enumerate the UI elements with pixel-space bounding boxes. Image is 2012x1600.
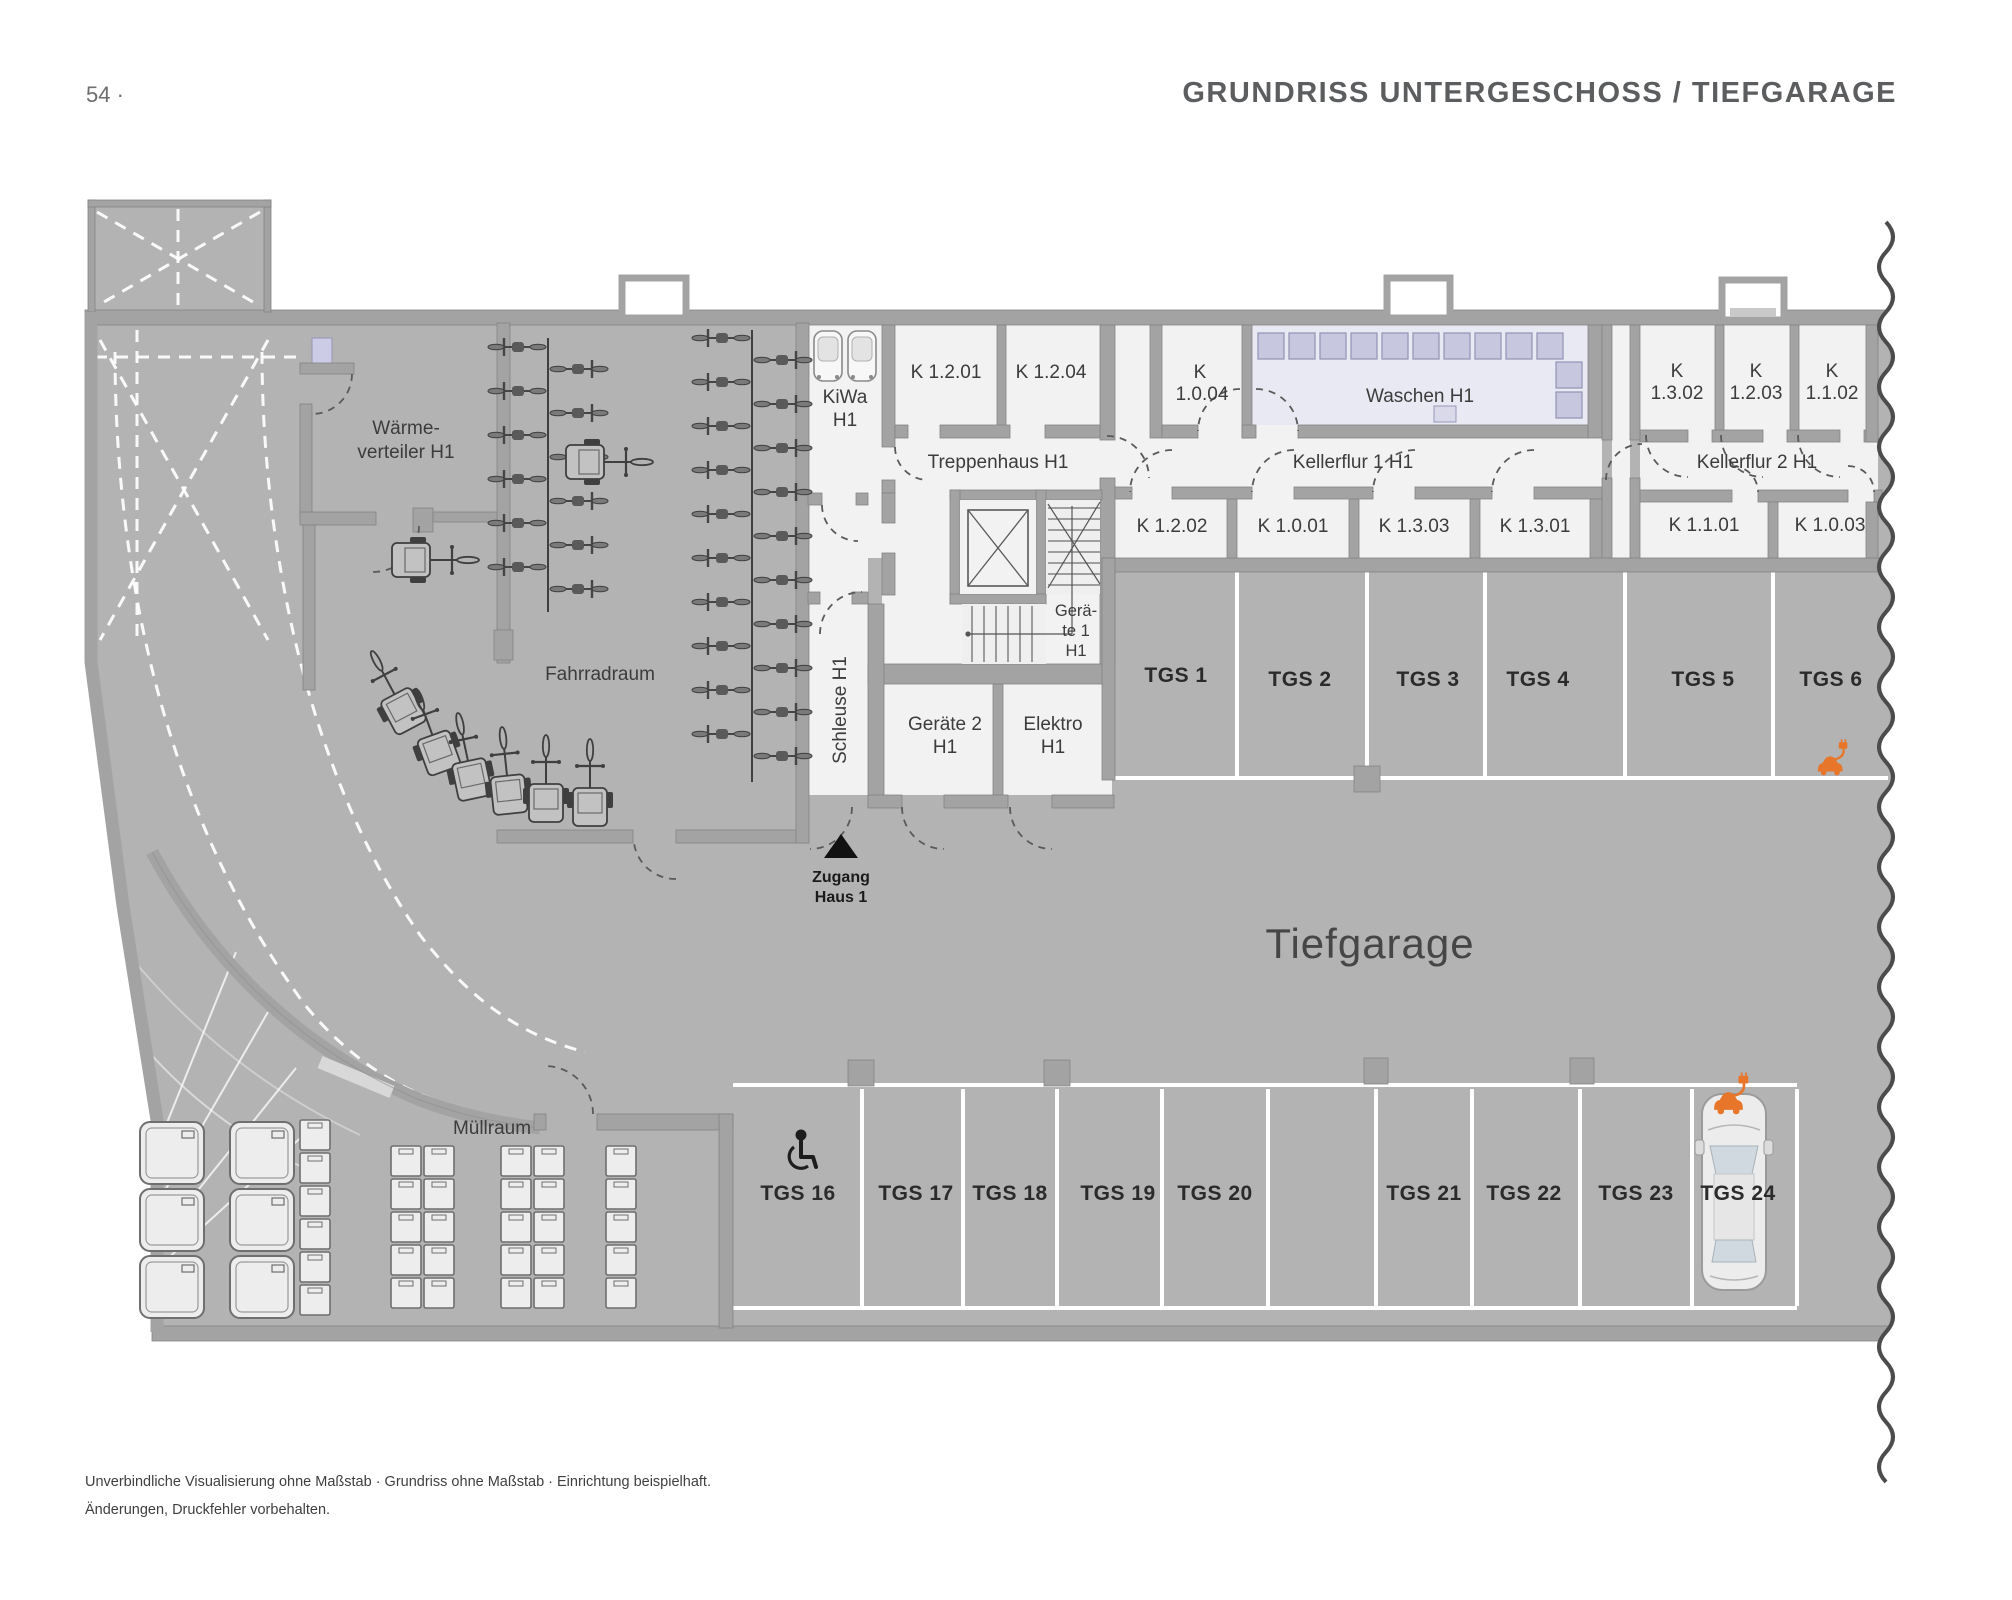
label-kellerflur2: Kellerflur 2 H1 [1697, 452, 1817, 473]
label-tgs-17: TGS 17 [878, 1182, 953, 1205]
label-tgs-5: TGS 5 [1671, 668, 1734, 691]
label-geraete1-1: Gerä- [1055, 602, 1097, 620]
label-tgs-3: TGS 3 [1396, 668, 1459, 691]
elevator-icon [960, 500, 1036, 594]
footnote-line-1: Unverbindliche Visualisierung ohne Maßst… [85, 1474, 711, 1490]
label-tgs-24: TGS 24 [1700, 1182, 1775, 1205]
column [1044, 1060, 1070, 1086]
label-k1102-1: K [1826, 361, 1839, 382]
label-tgs-2: TGS 2 [1268, 668, 1331, 691]
label-tgs-6: TGS 6 [1799, 668, 1862, 691]
label-k1004-2: 1.0.04 [1176, 384, 1229, 405]
label-tgs-23: TGS 23 [1598, 1182, 1673, 1205]
label-kiwa-2: H1 [833, 410, 857, 431]
label-waermeverteiler-1: Wärme- [372, 418, 440, 439]
label-tgs-4: TGS 4 [1506, 668, 1569, 691]
label-zugang-2: Haus 1 [815, 889, 868, 906]
page-title: GRUNDRISS UNTERGESCHOSS / TIEFGARAGE [1182, 77, 1897, 109]
column [1570, 1058, 1594, 1084]
label-tgs-19: TGS 19 [1080, 1182, 1155, 1205]
break-line [1879, 222, 2012, 1482]
label-k1303: K 1.3.03 [1379, 516, 1450, 537]
label-zugang-1: Zugang [812, 869, 870, 886]
label-tgs-16: TGS 16 [760, 1182, 835, 1205]
label-tgs-22: TGS 22 [1486, 1182, 1561, 1205]
page-number: 54 · [86, 82, 124, 107]
label-tgs-1: TGS 1 [1144, 664, 1207, 687]
label-k1203-1: K [1750, 361, 1763, 382]
label-elektro-1: Elektro [1023, 714, 1082, 735]
label-kellerflur1: Kellerflur 1 H1 [1293, 452, 1413, 473]
label-k1302-1: K [1671, 361, 1684, 382]
column [1364, 1058, 1388, 1084]
label-waermeverteiler-2: verteiler H1 [357, 442, 454, 463]
label-k1302-2: 1.3.02 [1651, 383, 1704, 404]
label-tgs-20: TGS 20 [1177, 1182, 1252, 1205]
label-kiwa-1: KiWa [823, 387, 868, 408]
label-fahrradraum: Fahrradraum [545, 664, 655, 685]
document-page: Wärme- verteiler H1 Fahrradraum KiWa H1 … [0, 0, 2012, 1600]
label-waschen: Waschen H1 [1366, 386, 1474, 407]
label-k1203-2: 1.2.03 [1730, 383, 1783, 404]
label-k1102-2: 1.1.02 [1806, 383, 1859, 404]
label-muellraum: Müllraum [453, 1118, 531, 1139]
label-treppenhaus: Treppenhaus H1 [928, 452, 1069, 473]
label-geraete1-3: H1 [1065, 642, 1086, 660]
floor-plan: Wärme- verteiler H1 Fahrradraum KiWa H1 … [0, 0, 2012, 1600]
label-k1201: K 1.2.01 [911, 362, 982, 383]
sink [1434, 406, 1456, 422]
label-k1204: K 1.2.04 [1016, 362, 1087, 383]
label-k1101: K 1.1.01 [1669, 515, 1740, 536]
label-k1004-1: K [1194, 362, 1207, 383]
label-geraete1-2: te 1 [1062, 622, 1090, 640]
label-k1301: K 1.3.01 [1500, 516, 1571, 537]
label-tgs-21: TGS 21 [1386, 1182, 1461, 1205]
label-tiefgarage: Tiefgarage [1265, 920, 1474, 967]
electric-box [312, 338, 332, 365]
label-k1003: K 1.0.03 [1795, 515, 1866, 536]
footnote-line-2: Änderungen, Druckfehler vorbehalten. [85, 1501, 330, 1518]
label-geraete2-2: H1 [933, 737, 957, 758]
label-geraete2-1: Geräte 2 [908, 714, 982, 735]
column [848, 1060, 874, 1086]
label-k1001: K 1.0.01 [1258, 516, 1329, 537]
column [1354, 766, 1380, 792]
label-k1202: K 1.2.02 [1137, 516, 1208, 537]
label-schleuse: Schleuse H1 [830, 656, 851, 764]
label-elektro-2: H1 [1041, 737, 1065, 758]
label-tgs-18: TGS 18 [972, 1182, 1047, 1205]
